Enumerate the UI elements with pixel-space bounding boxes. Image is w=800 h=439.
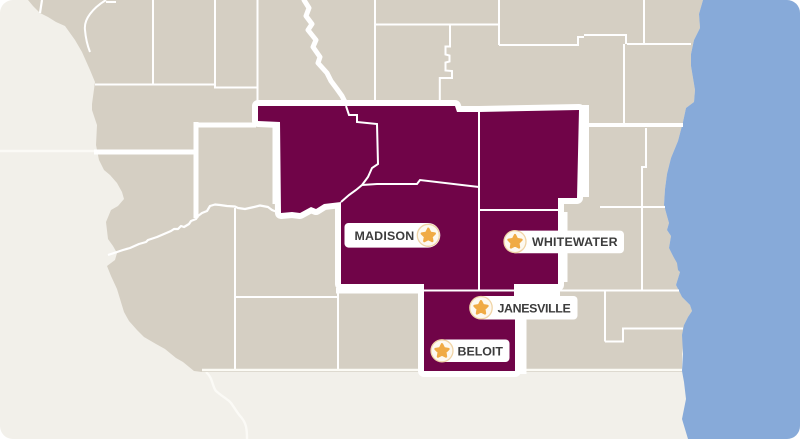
- svg-text:BELOIT: BELOIT: [458, 344, 504, 358]
- svg-text:MADISON: MADISON: [355, 229, 415, 243]
- svg-text:WHITEWATER: WHITEWATER: [532, 235, 618, 249]
- svg-text:JANESVILLE: JANESVILLE: [498, 301, 571, 315]
